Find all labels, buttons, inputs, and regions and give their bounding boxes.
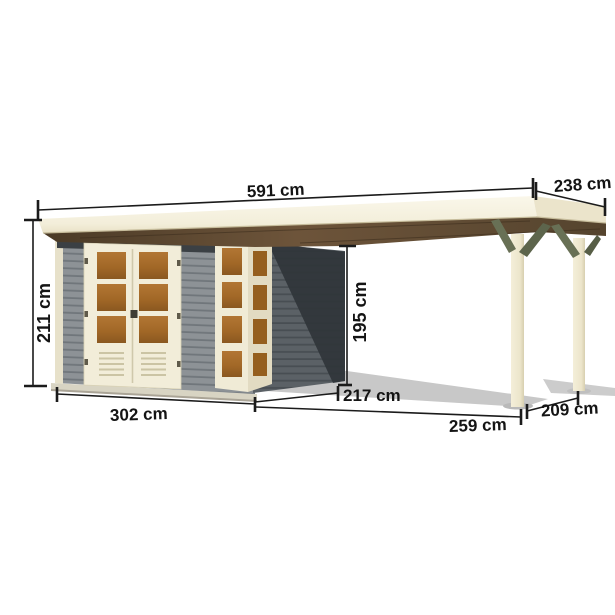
corner-window: [215, 239, 272, 392]
shed-depth-label: 217 cm: [343, 386, 401, 405]
canopy-rear-post: [573, 238, 585, 391]
roof-depth-label: 238 cm: [553, 173, 612, 196]
wall-height-label: 211 cm: [34, 283, 54, 343]
wall-corner-trim: [55, 238, 63, 384]
shed-dimension-diagram: 591 cm 238 cm 211 cm 195 cm 302 cm 217 c…: [0, 0, 615, 615]
canopy-brace: [584, 235, 601, 256]
canopy-width-label: 259 cm: [449, 415, 507, 436]
dim-line: [255, 393, 338, 402]
canopy-front-post: [511, 234, 524, 407]
shed-width-label: 302 cm: [110, 404, 168, 425]
double-door: [84, 243, 181, 389]
door-lock: [131, 310, 138, 318]
canopy-depth-label: 209 cm: [540, 399, 599, 421]
diagram-canvas: 591 cm 238 cm 211 cm 195 cm 302 cm 217 c…: [0, 0, 615, 615]
canopy-height-label: 195 cm: [350, 281, 370, 342]
roof-width-label: 591 cm: [247, 180, 305, 201]
